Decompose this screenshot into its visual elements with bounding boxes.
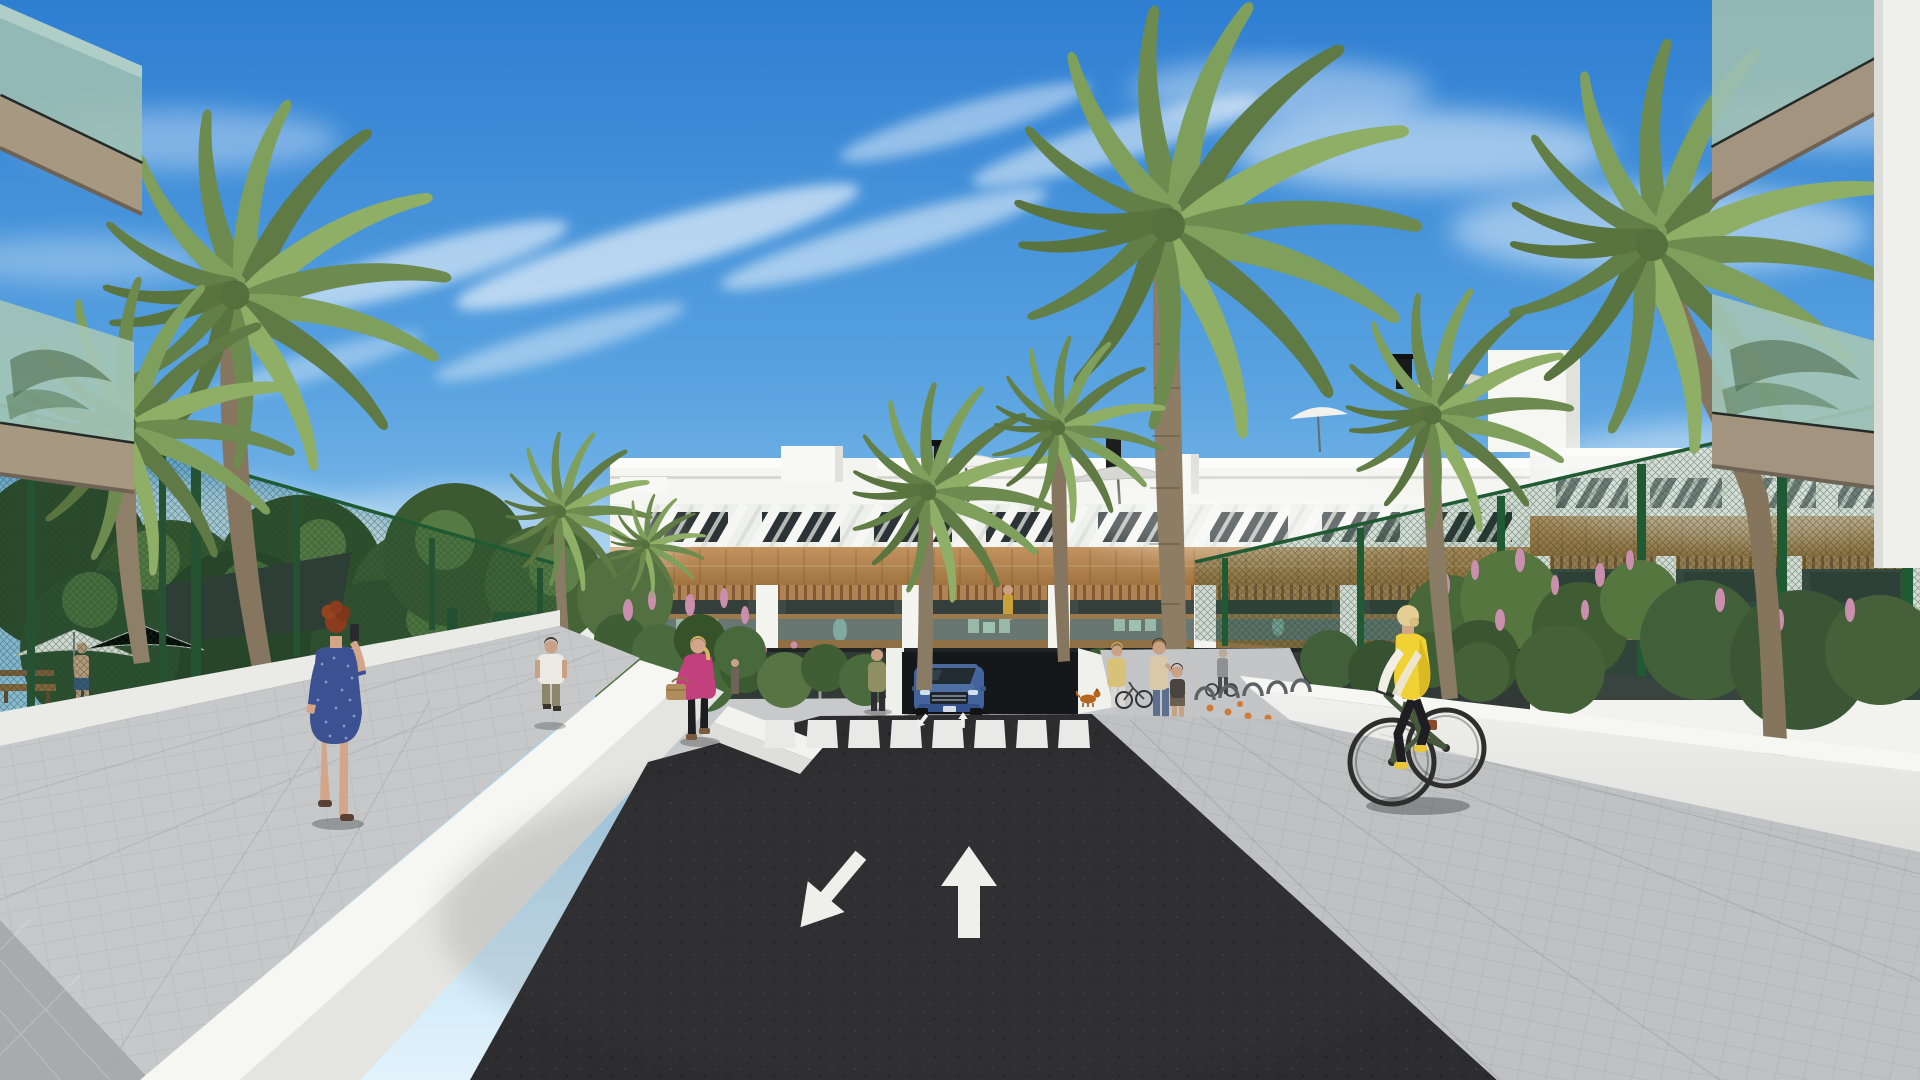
render-canvas: Residential complex exterior – architect… [0,0,1920,1080]
right-building-corner [1874,0,1920,568]
scene-render: Residential complex exterior – architect… [0,0,1920,1080]
distant-pedestrian [731,659,739,694]
